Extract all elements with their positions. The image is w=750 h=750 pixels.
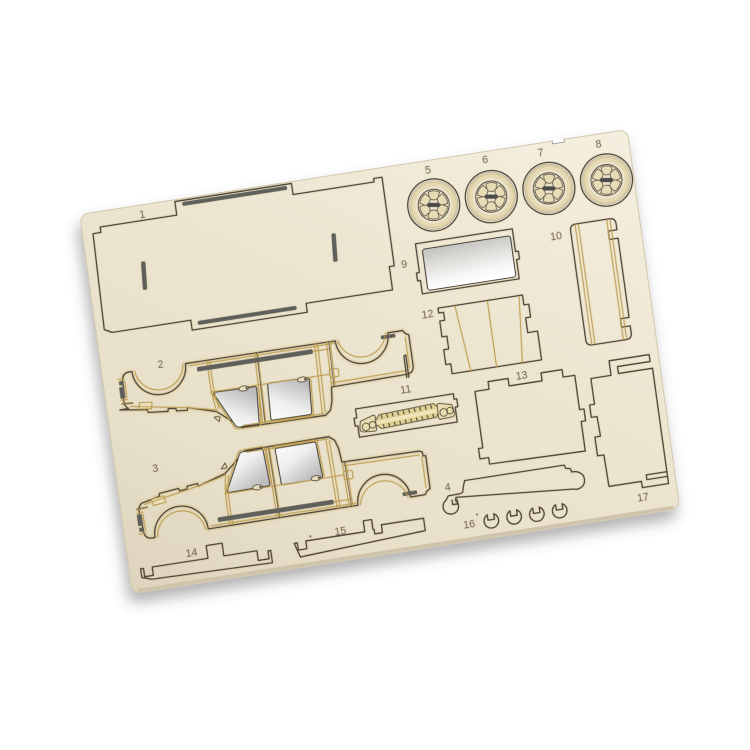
svg-text:15: 15 (334, 525, 347, 539)
svg-text:16: 16 (463, 518, 476, 532)
svg-text:11: 11 (400, 383, 413, 397)
svg-text:14: 14 (185, 546, 198, 560)
svg-text:17: 17 (636, 491, 649, 505)
svg-text:10: 10 (549, 230, 562, 244)
svg-text:13: 13 (515, 369, 528, 383)
svg-text:12: 12 (421, 308, 434, 322)
